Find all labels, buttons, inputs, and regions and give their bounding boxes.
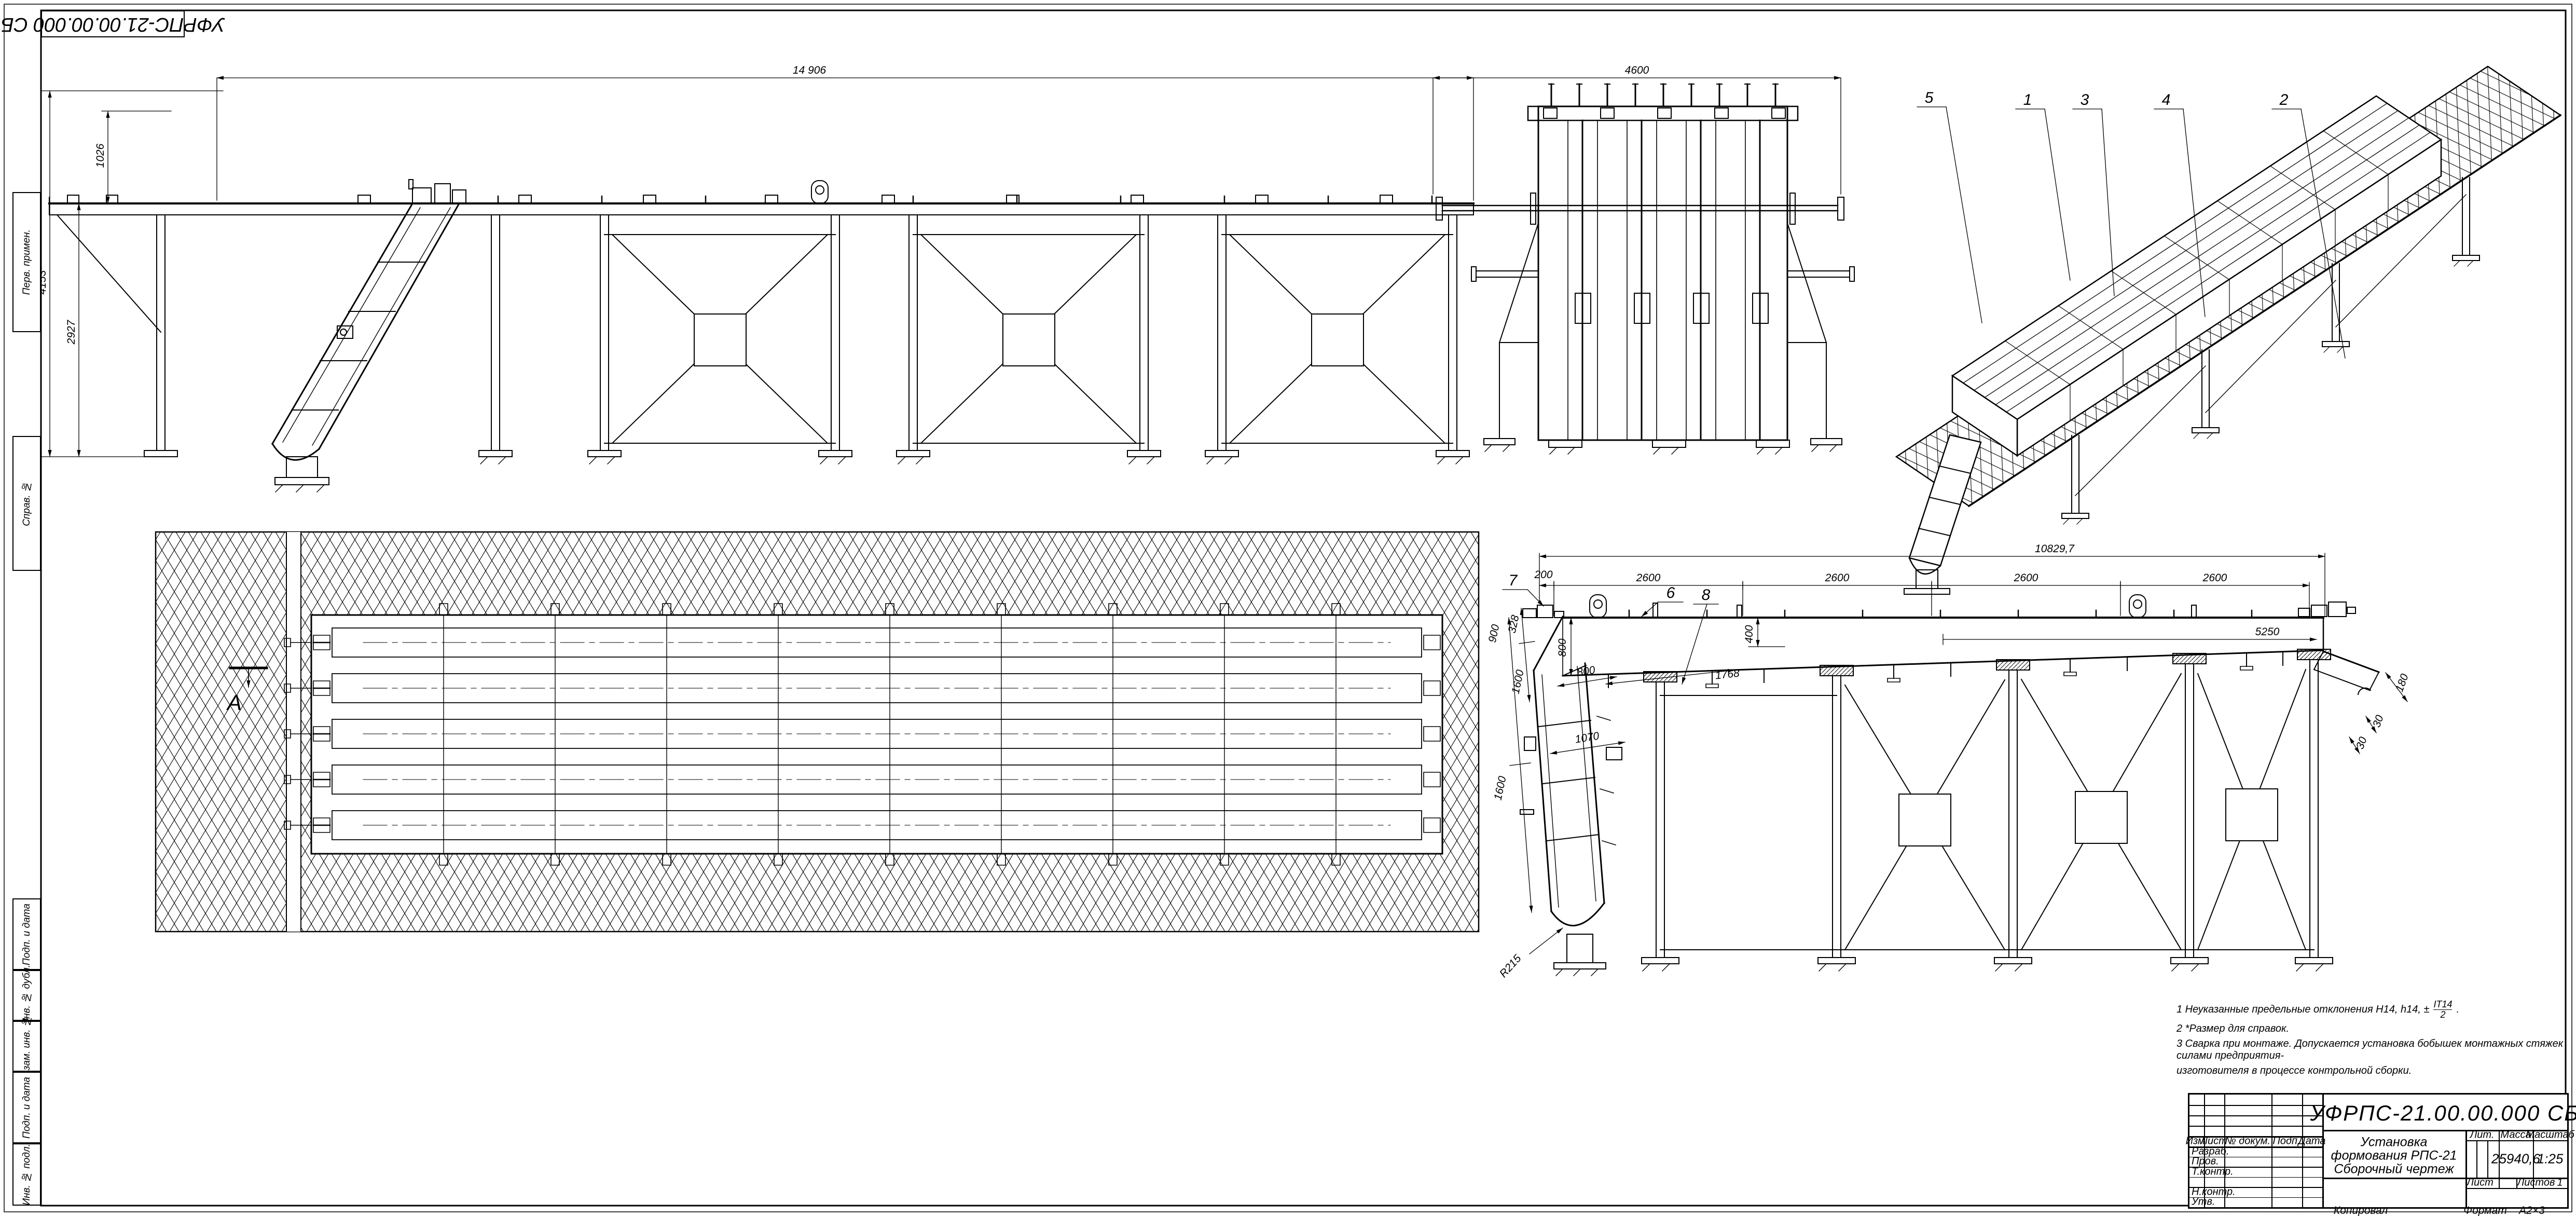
- margin-label: Подп. и дата: [21, 1077, 33, 1139]
- title-block: Изм. Лист № докум. Подп. Дата Разраб. Пр…: [2188, 1093, 2569, 1209]
- callout-2: 2: [2279, 91, 2289, 108]
- x-brace-bays-section: [1660, 670, 2314, 950]
- tb-row-tkontr: Т.контр.: [2192, 1166, 2234, 1178]
- dim-800-across-label: 800: [1576, 664, 1596, 678]
- tb-lit-label: Лит.: [2470, 1129, 2495, 1141]
- dim-800-left-label: 800: [1556, 638, 1568, 657]
- dim-5250-label: 5250: [2255, 626, 2280, 638]
- dim-1600-a-label: 1600: [1510, 668, 1526, 695]
- margin-label: Перв. примен.: [21, 229, 33, 295]
- tb-name-line1: Установка: [2361, 1135, 2428, 1150]
- dim-1070-label: 1070: [1574, 730, 1600, 746]
- view-section: [1503, 553, 2407, 976]
- fraction-numerator: IT14: [2433, 1000, 2452, 1009]
- dimensions-section: [1503, 553, 2407, 954]
- callout-8: 8: [1702, 586, 1711, 604]
- tb-name-line3: Сборочный чертеж: [2334, 1162, 2454, 1177]
- dim-1768-label: 1768: [1715, 667, 1740, 682]
- margin-block-perv-primen: Перв. примен.: [12, 192, 41, 332]
- corner-stamp-code: УФРПС-21.00.00.000 СБ: [1, 13, 225, 35]
- tb-name-line2: формования РПС-21: [2331, 1149, 2457, 1164]
- margin-block-inv-podl: Инв. № подл.: [12, 1143, 41, 1206]
- format-label: Формат: [2463, 1205, 2506, 1216]
- margin-label: Инв. № подл.: [21, 1144, 33, 1205]
- tb-col-podp: Подп.: [2272, 1136, 2300, 1147]
- margin-label: Подп. и дата: [21, 904, 33, 965]
- dim-overall-section-label: 10829,7: [2035, 543, 2075, 555]
- tb-row-utv: Утв.: [2192, 1196, 2215, 1208]
- callout-7: 7: [1509, 572, 1518, 589]
- dim-overall-top-label: 14 906: [793, 64, 826, 76]
- tb-listov-label: Листов: [2517, 1177, 2555, 1189]
- view-plan: [156, 532, 1479, 932]
- dim-2600-1-label: 2600: [1636, 572, 1661, 584]
- note-1-suffix: .: [2456, 1004, 2459, 1016]
- view-end: [1433, 78, 1854, 454]
- technical-notes: 1 Неуказанные предельные отклонения Н14,…: [2176, 1000, 2576, 1077]
- fraction-denominator: 2: [2440, 1010, 2445, 1020]
- tb-col-data: Дата: [2298, 1136, 2326, 1147]
- margin-label: Справ. №: [21, 481, 33, 526]
- callout-5: 5: [1925, 89, 1934, 106]
- dim-r215-label: R215: [1497, 952, 1524, 980]
- margin-block-sprav-no: Справ. №: [12, 436, 41, 571]
- note-2: 2 *Размер для справок.: [2176, 1023, 2576, 1035]
- note-1: 1 Неуказанные предельные отклонения Н14,…: [2176, 1000, 2576, 1020]
- tb-masshtab-label: Масштаб: [2526, 1129, 2574, 1141]
- dim-2600-4-label: 2600: [2202, 572, 2227, 584]
- deck-details-section: [1523, 595, 2355, 618]
- dim-900-label: 900: [1486, 623, 1502, 644]
- dim-height-upper-label: 1026: [94, 143, 106, 168]
- dim-height-deck-label: 2927: [65, 319, 77, 345]
- lifting-eye-icon: [811, 181, 828, 203]
- margin-block-podp-data-1: Подп. и дата: [12, 898, 41, 970]
- note-3-line1: 3 Сварка при монтаже. Допускается устано…: [2176, 1038, 2576, 1062]
- section-label: А: [226, 690, 242, 715]
- kopiroval-label: Копировал: [2334, 1205, 2388, 1216]
- dim-2600-2-label: 2600: [1825, 572, 1850, 584]
- dim-30-a-label: 30: [2371, 714, 2386, 729]
- tb-scale-value: 1:25: [2537, 1151, 2564, 1167]
- margin-block-vzam-inv: Взам. инв. №: [12, 1021, 41, 1072]
- margin-label: Взам. инв. №: [21, 1016, 33, 1077]
- note-1-text: 1 Неуказанные предельные отклонения Н14,…: [2176, 1004, 2429, 1016]
- dim-1600-b-label: 1600: [1492, 775, 1509, 801]
- tb-listov-value: 1: [2557, 1177, 2563, 1189]
- tb-list-label: Лист: [2467, 1177, 2494, 1189]
- dim-end-width-label: 4600: [1625, 64, 1649, 76]
- margin-block-inv-dubl: Инв. № дубл.: [12, 970, 41, 1021]
- dimensions-side-top: [31, 78, 1473, 457]
- drawing-sheet: 14 906 4153* 2927 1026: [0, 0, 2576, 1216]
- iso-mold: [1952, 96, 2441, 456]
- corner-stamp: УФРПС-21.00.00.000 СБ: [41, 10, 185, 37]
- view-side-elevation: [31, 78, 1473, 492]
- view-isometric: [0, 0, 2560, 594]
- inclined-elevator: [272, 180, 466, 492]
- note-1-fraction: IT14 2: [2433, 1000, 2452, 1020]
- dim-200-label: 200: [1534, 569, 1552, 581]
- iso-elevator: [0, 0, 1981, 594]
- format-value: А2×3: [2519, 1205, 2545, 1216]
- tb-massa-value: 25940,6: [2491, 1151, 2540, 1167]
- dim-400-label: 400: [1743, 625, 1755, 643]
- tb-col-docnum: № докум.: [2225, 1136, 2270, 1147]
- note-3-line2: изготовителя в процессе контрольной сбор…: [2176, 1065, 2576, 1077]
- callout-3: 3: [2081, 91, 2089, 108]
- dim-328-label: 328: [1506, 614, 1522, 634]
- callout-1: 1: [2023, 91, 2032, 108]
- dim-2600-3-label: 2600: [2014, 572, 2038, 584]
- x-brace-bays: [604, 235, 1453, 443]
- tb-doc-code: УФРПС-21.00.00.000 СБ: [2310, 1101, 2576, 1126]
- margin-block-podp-data-2: Подп. и дата: [12, 1072, 41, 1143]
- callout-6: 6: [1666, 584, 1675, 602]
- deck-detail-blocks: [67, 195, 1393, 203]
- dim-180-label: 180: [2393, 672, 2411, 693]
- callout-4: 4: [2162, 91, 2171, 108]
